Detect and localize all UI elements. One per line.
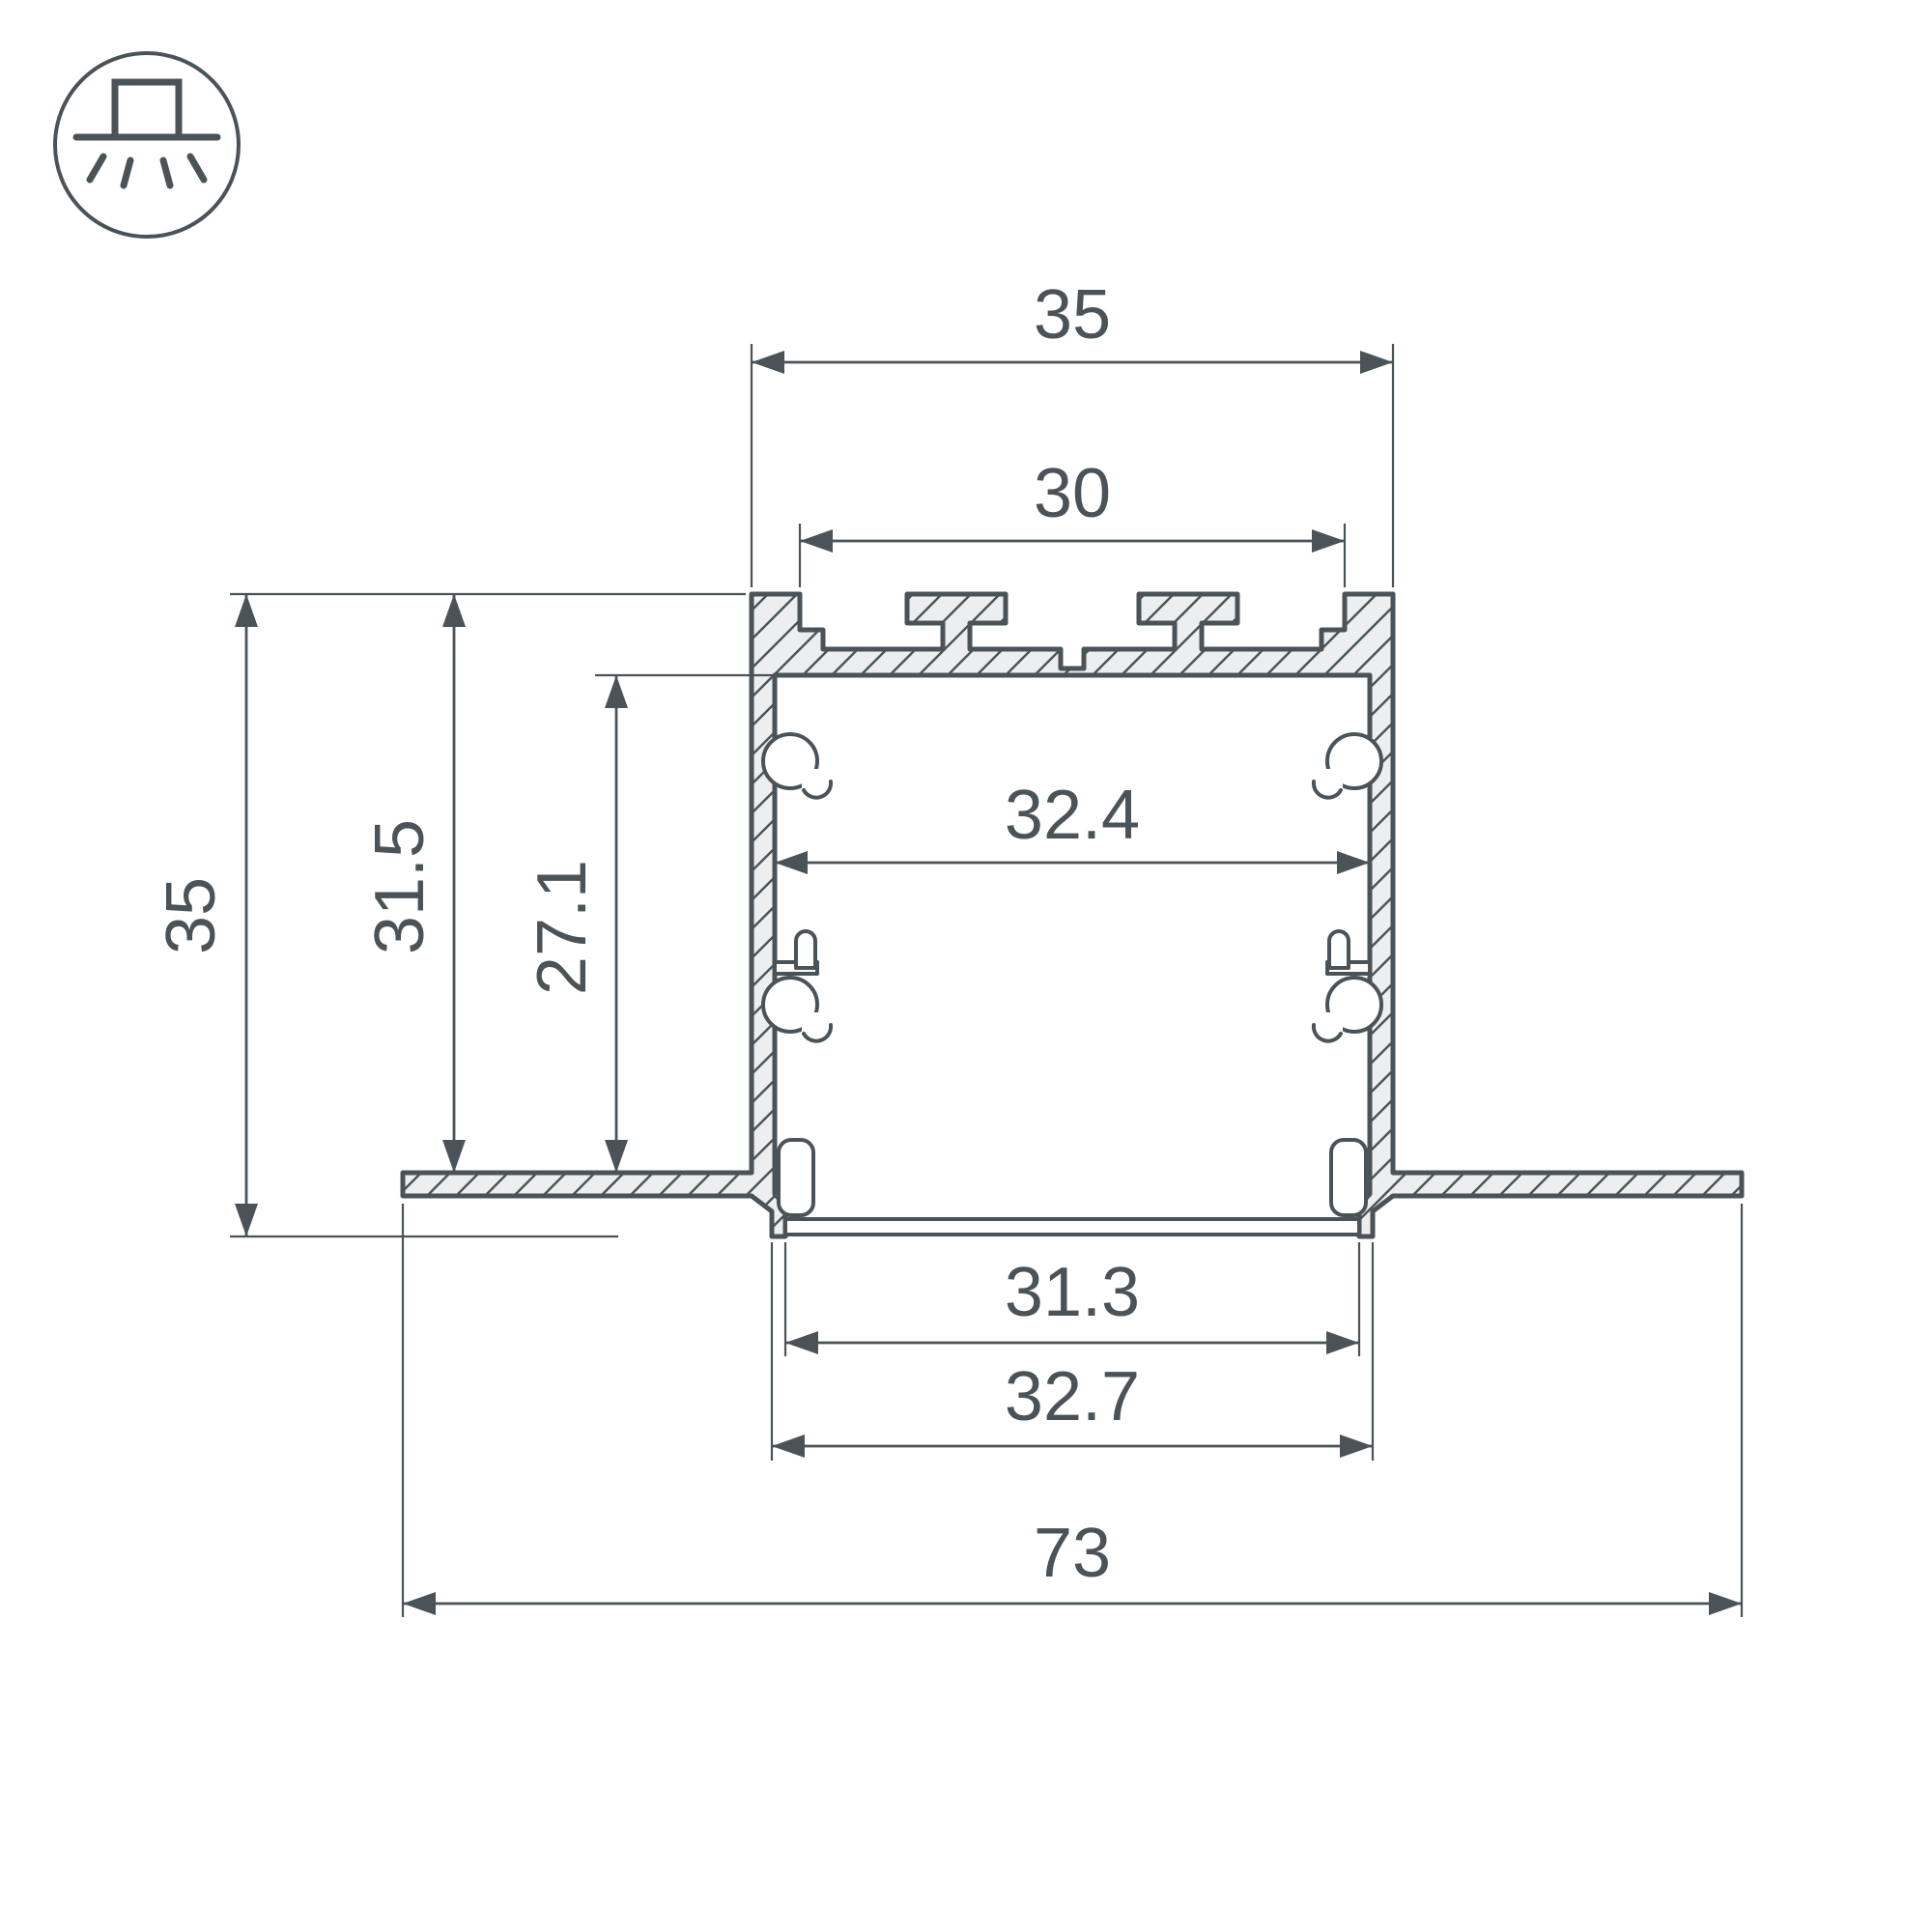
- dim-label-bottom-opening: 31.3: [1005, 1254, 1140, 1331]
- dim-label-bottom-width: 32.7: [1005, 1358, 1140, 1435]
- dim-label-top-width: 35: [1034, 276, 1111, 354]
- dim-label-top-opening: 30: [1034, 455, 1111, 532]
- dim-label-side-height: 35: [153, 877, 230, 954]
- recessed-light-icon: [55, 53, 239, 237]
- profile-technical-drawing: 35 30 32.4 35: [0, 0, 1932, 1932]
- dimension-cavity-width: 32.4: [775, 777, 1370, 874]
- diffuser-plate: [785, 1219, 1359, 1235]
- profile-cross-section: [403, 594, 1742, 1236]
- dim-label-cavity-width: 32.4: [1005, 777, 1140, 854]
- dim-label-overall-width: 73: [1034, 1515, 1111, 1592]
- dimension-top-opening: 30: [800, 455, 1345, 587]
- dim-label-cavity-height: 27.1: [524, 860, 601, 995]
- dimensions: 35 30 32.4 35: [153, 276, 1742, 1617]
- dimension-cavity-height: 27.1: [524, 675, 777, 1173]
- dimension-bottom-opening: 31.3: [785, 1242, 1359, 1356]
- dim-label-recess-depth: 31.5: [361, 819, 439, 954]
- drawing-canvas: 35 30 32.4 35: [0, 0, 1932, 1932]
- profile-body: [403, 594, 1742, 1236]
- dimension-recess-depth: 31.5: [361, 594, 466, 1173]
